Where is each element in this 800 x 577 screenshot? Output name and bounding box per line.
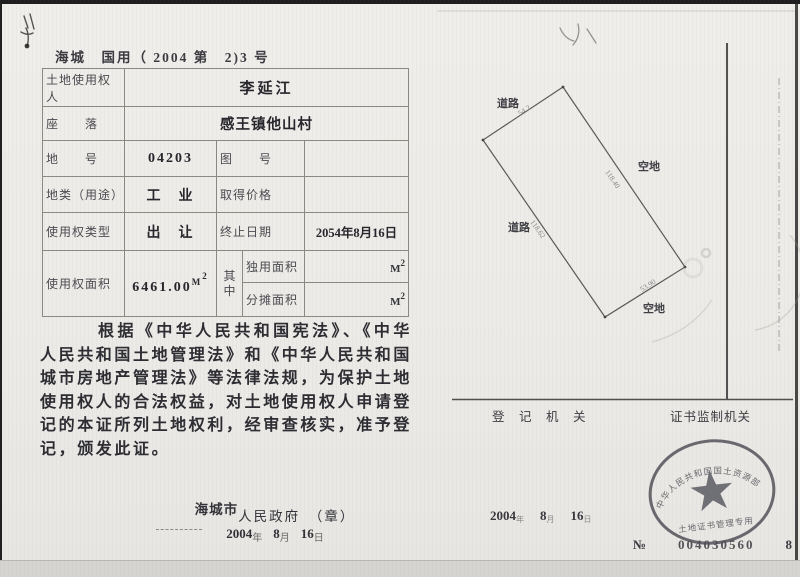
area-unit: M2: [192, 277, 209, 287]
issue-day: 16: [301, 526, 314, 541]
table-row: 地 号 04203 图 号: [43, 141, 409, 177]
scan-edge-left: [0, 0, 2, 562]
area-number: 6461.00: [132, 280, 192, 295]
dim-right: 118.40: [603, 168, 622, 190]
land-use-label: 地类（用途）: [43, 177, 125, 213]
seal-arc-text: 中华人民共和国国土资源部: [650, 460, 765, 512]
apportioned-area-label: 分摊面积: [243, 283, 305, 317]
registration-org-label: 登 记 机 关: [492, 406, 587, 425]
table-row: 地类（用途） 工 业 取得价格: [43, 177, 409, 213]
legal-paragraph: 根据《中华人民共和国宪法》、《中华人民共和国土地管理法》和《中华人民共和国城市房…: [40, 320, 412, 461]
issuer-line: 海城市人民政府 （章）: [150, 505, 400, 525]
table-row: 使用权面积 6461.00M2 其中 独用面积 M2: [43, 251, 409, 283]
exclusive-area-unit: M2: [305, 251, 409, 283]
serial-tail: 8: [785, 537, 793, 553]
map-no-value: [305, 141, 409, 177]
among-label-cell: 其中: [217, 251, 243, 317]
end-date-value: 2054年8月16日: [305, 213, 409, 251]
issuer-city-handwritten: 海城市: [195, 502, 239, 517]
area-value: 6461.00M2: [125, 251, 217, 317]
official-seal: 中华人民共和国国土资源部 土地证书管理专用: [644, 434, 780, 550]
parcel-no-label: 地 号: [43, 141, 125, 177]
holder-label: 土地使用权人: [43, 69, 125, 107]
dim-bottom: 53.90: [638, 277, 657, 294]
location-label: 座 落: [43, 107, 125, 141]
handwritten-scribble-topleft: [21, 14, 34, 48]
scan-edge-right: [795, 0, 798, 562]
holder-value: 李延江: [125, 69, 409, 107]
seal-star-icon: [689, 468, 735, 513]
serial-prefix: №: [633, 537, 647, 553]
parcel-outline: [483, 87, 685, 317]
land-use-value: 工 业: [125, 177, 217, 213]
handwritten-dash-mark: [156, 529, 202, 530]
exclusive-area-label: 独用面积: [243, 251, 305, 283]
right-type-value: 出 让: [125, 213, 217, 251]
apportioned-area-unit: M2: [305, 283, 409, 317]
certificate-number: 海城 国用（ 2004 第 2)3 号: [55, 46, 270, 66]
vacant-label-bottom: 空地: [643, 301, 665, 315]
scan-bed-strip: [0, 560, 800, 577]
scan-edge-top: [0, 0, 800, 4]
table-row: 使用权类型 出 让 终止日期 2054年8月16日: [43, 213, 409, 251]
price-value: [305, 177, 409, 213]
among-label: 其中: [223, 269, 237, 299]
serial-number: 004030560: [678, 537, 755, 553]
reg-year: 2004: [490, 508, 516, 523]
parcel-no-value: 04203: [125, 141, 217, 177]
location-value: 感王镇他山村: [125, 107, 409, 141]
dim-left: 118.62: [528, 218, 547, 240]
map-no-label: 图 号: [217, 141, 305, 177]
registration-date: 2004年8月16日: [490, 508, 592, 525]
certificate-field-table: 土地使用权人 李延江 座 落 感王镇他山村 地 号 04203 图 号 地类（用…: [42, 68, 409, 317]
table-row: 土地使用权人 李延江: [43, 69, 409, 107]
issuer-government-label: 人民政府 （章）: [238, 509, 355, 524]
issue-year: 2004: [226, 526, 252, 541]
issuer-block: 海城市人民政府 （章） 2004年 8月 16日: [150, 505, 400, 545]
table-row: 座 落 感王镇他山村: [43, 107, 409, 141]
scanned-certificate-page: 海城 国用（ 2004 第 2)3 号 土地使用权人 李延江 座 落 感王镇他山…: [0, 0, 800, 577]
area-label: 使用权面积: [43, 251, 125, 317]
road-label-top: 道路: [497, 96, 520, 110]
right-type-label: 使用权类型: [43, 213, 125, 251]
reg-day: 16: [571, 508, 584, 523]
dim-top: 54.2: [516, 103, 532, 118]
price-label: 取得价格: [217, 177, 305, 213]
stamp-bleed-marks: [652, 235, 800, 342]
seal-bottom-text: 土地证书管理专用: [678, 515, 755, 534]
handwritten-scribble-topright: [560, 24, 596, 45]
issue-date: 2004年 8月 16日: [150, 529, 400, 545]
issue-month: 8: [273, 526, 280, 541]
road-label-left: 道路: [508, 220, 531, 234]
vacant-label-right: 空地: [638, 159, 660, 173]
seal-outline: [644, 434, 780, 550]
certificate-serial: № 004030560 8: [633, 537, 793, 553]
end-date-label: 终止日期: [217, 213, 305, 251]
certificate-supervisor-label: 证书监制机关: [670, 406, 751, 425]
parcel-corner-points: [482, 86, 687, 319]
